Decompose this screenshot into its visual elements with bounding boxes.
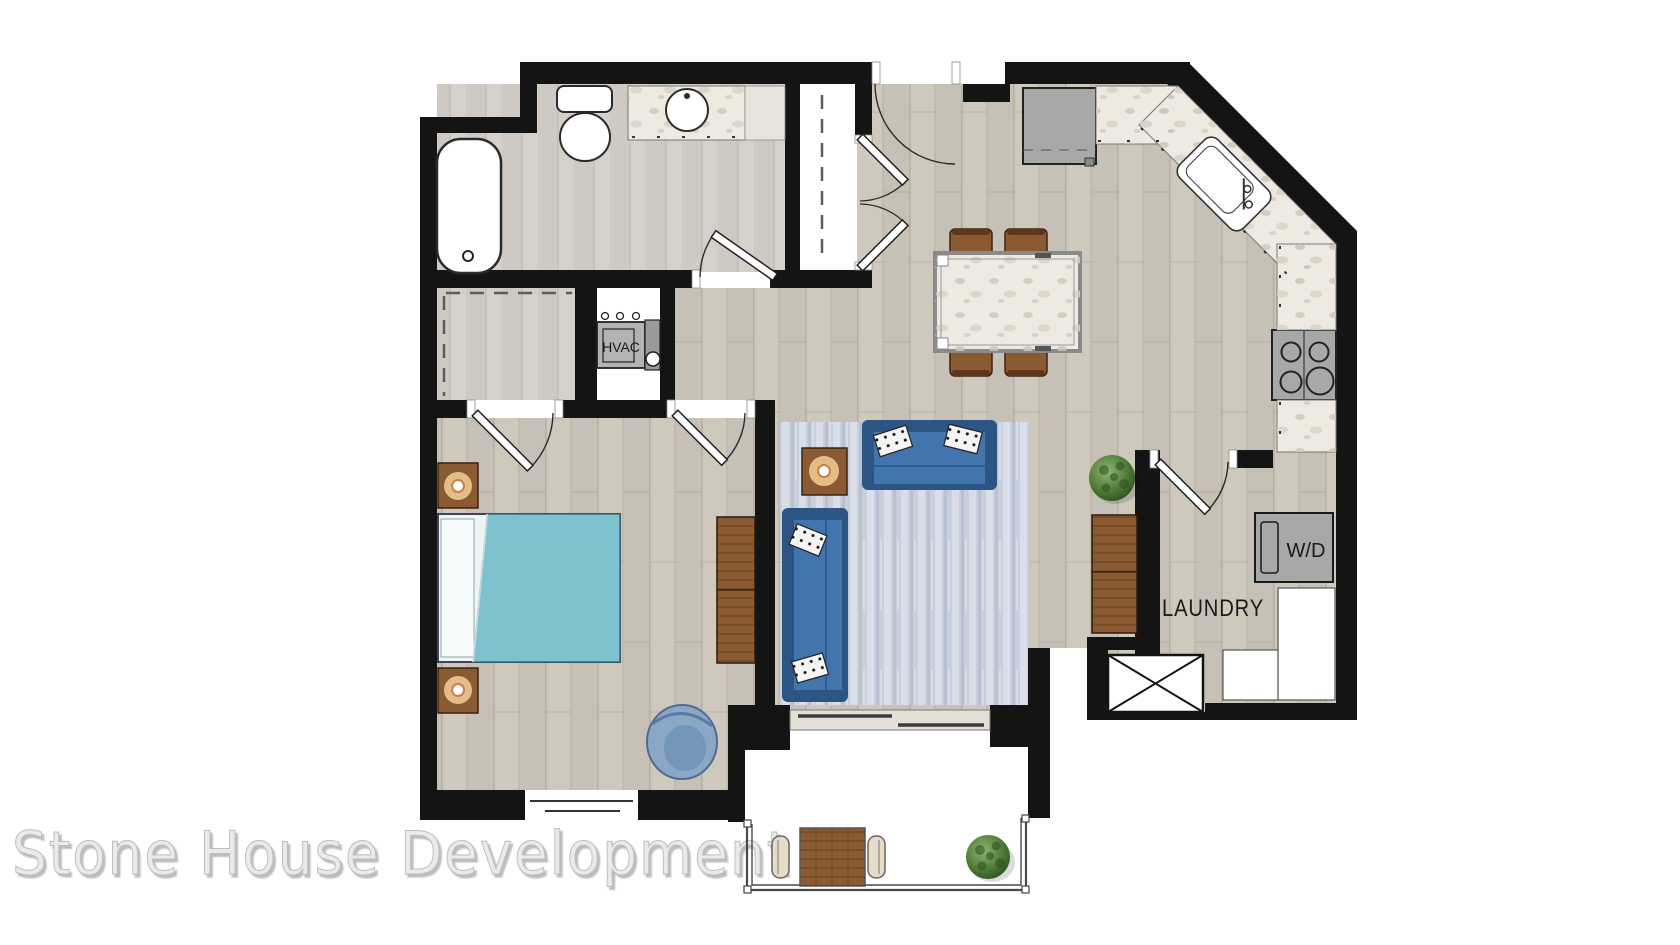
bed-pillow-area [441,519,474,657]
patio-chair-left [772,836,789,878]
bed-blanket [473,514,620,662]
hvac-unit: HVAC [597,313,660,371]
bedroom-window [525,790,638,820]
shaft [1108,655,1203,712]
wall-left [420,117,437,820]
table-lamp-finial [818,465,830,477]
wall-top-bathroom [520,62,872,84]
wall-corner-step-v [520,62,537,120]
floorplan-svg: Stone House Development [0,0,1680,945]
washer-dryer-label: W/D [1287,540,1326,562]
wall-slider-right-block [990,705,1048,747]
vanity-side [745,86,785,140]
wall-bedroom-bottom-left [420,790,525,820]
floorplan-image: Stone House Development [0,0,1680,945]
wall-shaft-top [1087,637,1155,650]
wall-bedroom-bottom-right [638,790,745,820]
toilet-tank [557,86,612,112]
refrigerator-handle [1085,158,1094,166]
wall-bedroom-top-1 [420,400,467,418]
toilet-bowl [560,113,610,161]
wall-closet-right-upper [855,62,872,137]
walkin-closet-floor-texture [437,288,577,400]
sink-faucet [684,93,690,99]
entry-floor-strip [857,135,872,270]
sliding-door-track [790,710,990,730]
patio-chair-right [868,836,885,878]
wall-entry-stub [963,84,1010,102]
wall-bedroom-living-divider [755,400,775,707]
bathtub-drain [463,251,473,261]
entry-closet-floor [800,84,855,270]
wall-laundry-bottom [1205,703,1357,720]
wall-corner-step-h [420,117,537,133]
laundry-counter-left [1223,650,1278,700]
wall-laundry-top-stub [1237,450,1273,468]
wall-bedroom-top-2 [563,400,667,418]
wall-top-kitchen [1005,62,1190,84]
wall-hvac-right [660,288,675,400]
hvac-valve [646,352,660,366]
accent-chair-seat [664,725,706,771]
wall-closet-bottom [818,270,872,288]
refrigerator [1023,88,1096,164]
watermark-text: Stone House Development [12,819,790,889]
dining-table-texture [935,253,1080,351]
wall-right [1336,231,1357,720]
wall-closet-hvac-divider [575,288,597,400]
wall-bath-closet-divider [785,62,800,288]
hvac-label: HVAC [602,339,640,355]
laundry-counter-right [1278,588,1335,700]
laundry-label: LAUNDRY [1162,595,1264,622]
